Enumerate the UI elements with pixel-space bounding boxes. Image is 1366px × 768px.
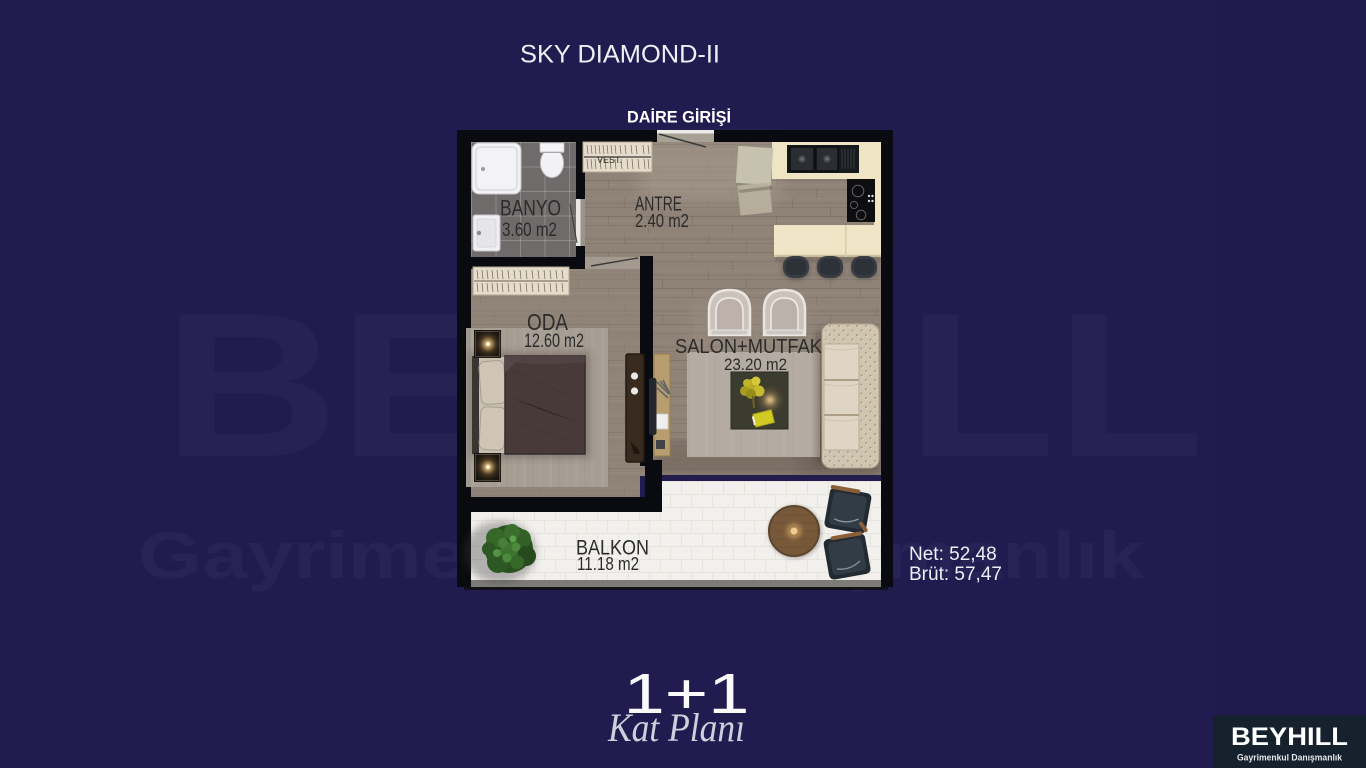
- svg-text:BANYO: BANYO: [500, 196, 561, 221]
- svg-text:SKY DIAMOND-II: SKY DIAMOND-II: [520, 41, 720, 69]
- svg-text:VEST.: VEST.: [597, 155, 622, 165]
- svg-text:Gayrimenkul Danışmanlık: Gayrimenkul Danışmanlık: [1237, 753, 1343, 764]
- svg-text:Brüt: 57,47: Brüt: 57,47: [909, 564, 1002, 585]
- svg-text:BEYHILL: BEYHILL: [1231, 723, 1348, 751]
- svg-text:DAİRE GİRİŞİ: DAİRE GİRİŞİ: [627, 108, 731, 127]
- svg-text:Kat Planı: Kat Planı: [607, 705, 745, 750]
- svg-text:12.60 m2: 12.60 m2: [524, 331, 584, 352]
- svg-text:2.40 m2: 2.40 m2: [635, 210, 689, 231]
- svg-text:23.20 m2: 23.20 m2: [724, 355, 787, 374]
- svg-text:11.18 m2: 11.18 m2: [577, 554, 639, 574]
- svg-text:Net: 52,48: Net: 52,48: [909, 544, 997, 565]
- svg-text:3.60 m2: 3.60 m2: [502, 220, 557, 241]
